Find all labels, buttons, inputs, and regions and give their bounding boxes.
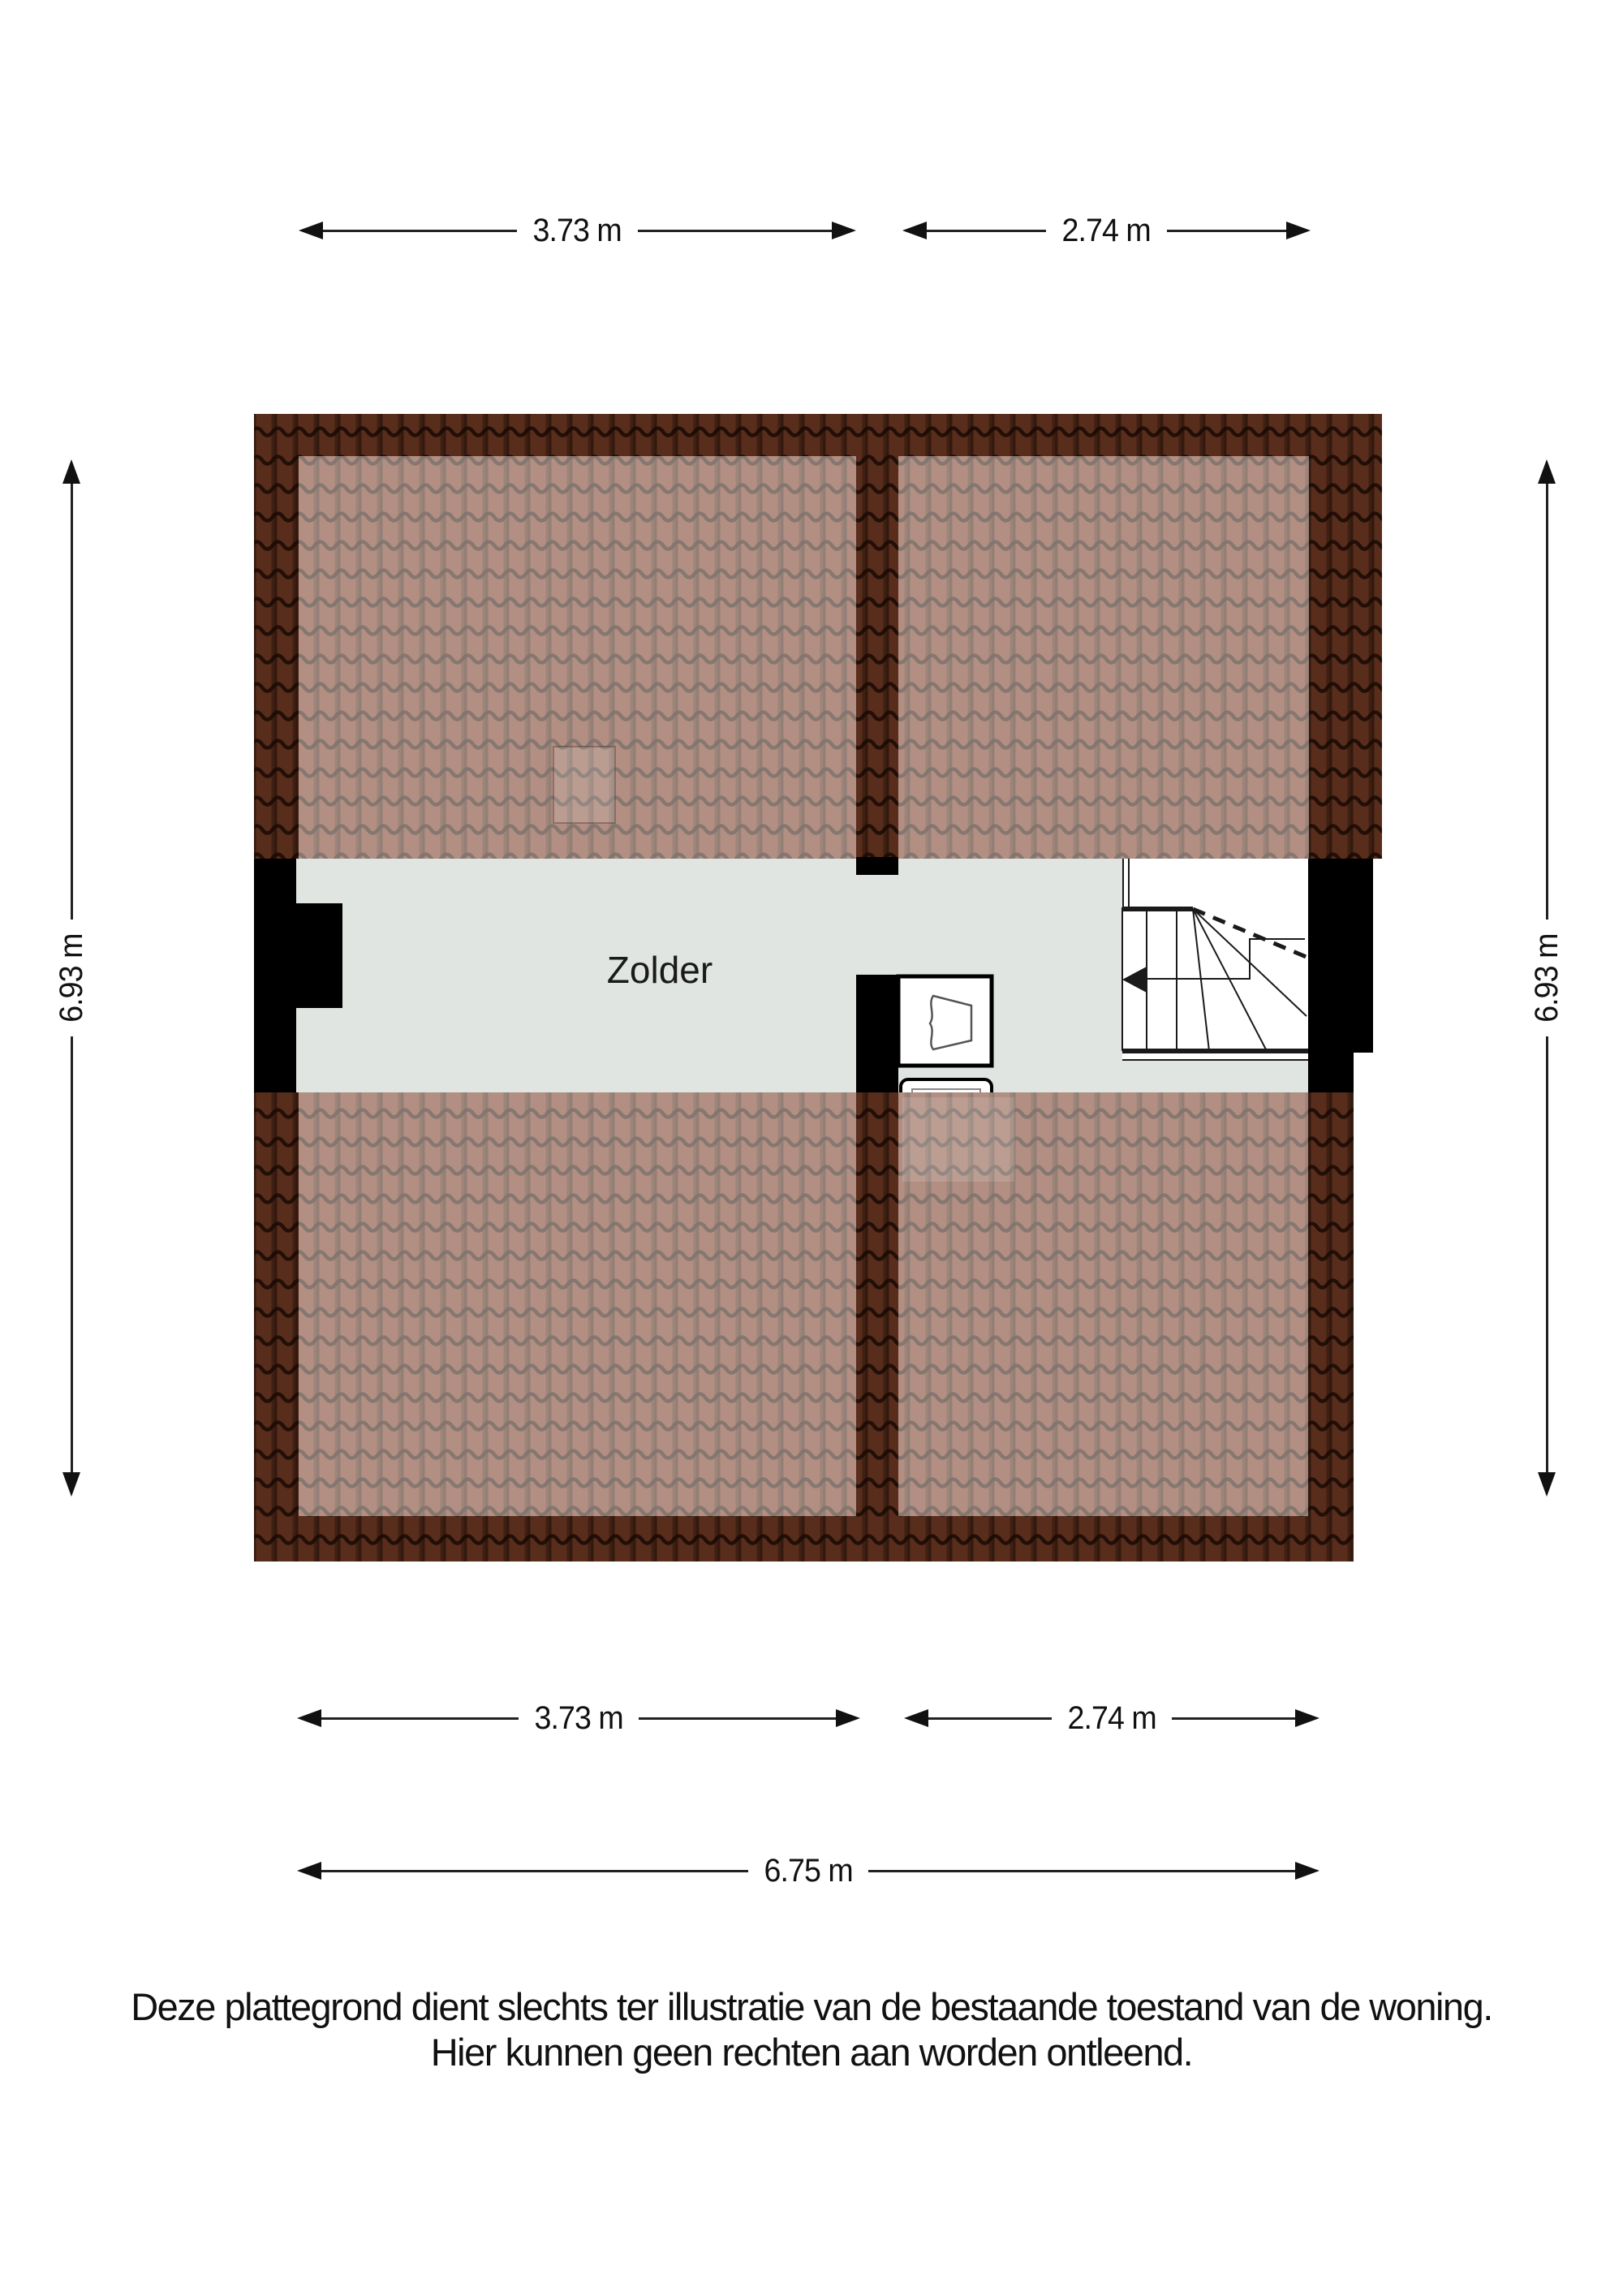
roof-panel-bottom-left bbox=[299, 1092, 856, 1516]
wall-center-stub bbox=[856, 857, 898, 875]
dimension-label: 3.73 m bbox=[521, 213, 634, 249]
roof-edge-bottom bbox=[254, 1516, 1354, 1562]
dimension-left-height: 6.93 m bbox=[53, 459, 90, 1497]
roof-divider-bottom bbox=[856, 1092, 898, 1516]
dimension-label: 6.93 m bbox=[54, 923, 90, 1033]
dimension-bottom-right-section: 2.74 m bbox=[904, 1699, 1319, 1737]
arrowhead-right-icon bbox=[832, 222, 856, 239]
roof-panel-top-right bbox=[898, 456, 1309, 859]
arrowhead-right-icon bbox=[1286, 222, 1311, 239]
roof-edge-bottom-right bbox=[1308, 1092, 1354, 1516]
wall-left-pier bbox=[296, 903, 342, 1008]
roof-edge-top-left bbox=[254, 456, 299, 859]
dimension-label: 2.74 m bbox=[1050, 213, 1163, 249]
dimension-bottom-total: 6.75 m bbox=[297, 1852, 1319, 1889]
disclaimer-text: Deze plattegrond dient slechts ter illus… bbox=[0, 1984, 1623, 2075]
dimension-label: 2.74 m bbox=[1055, 1700, 1168, 1737]
arrowhead-left-icon bbox=[902, 222, 927, 239]
dimension-label: 6.75 m bbox=[751, 1853, 864, 1889]
dimension-top-right-section: 2.74 m bbox=[902, 212, 1311, 249]
room-label: Zolder bbox=[607, 949, 712, 991]
wall-right-upper bbox=[1308, 859, 1373, 1053]
wall-right-lower bbox=[1308, 1053, 1354, 1092]
dimension-right-height: 6.93 m bbox=[1528, 459, 1565, 1497]
disclaimer-line-2: Hier kunnen geen rechten aan worden ontl… bbox=[0, 2030, 1623, 2075]
dimension-top-left-section: 3.73 m bbox=[299, 212, 856, 249]
roof-edge-bottom-left bbox=[254, 1092, 299, 1516]
wall-center-lower bbox=[856, 975, 898, 1092]
arrowhead-down-icon bbox=[1538, 1472, 1556, 1497]
stairwell-area bbox=[1122, 859, 1308, 1061]
floorplan-page: { "page": { "background": "#ffffff" }, "… bbox=[0, 0, 1623, 2296]
floorplan-drawing: Zolder bbox=[254, 414, 1383, 1562]
skylight bbox=[553, 747, 615, 823]
roof-divider-top bbox=[856, 456, 898, 859]
dormer-window-box bbox=[898, 976, 992, 1066]
arrowhead-left-icon bbox=[299, 222, 323, 239]
dimension-label: 3.73 m bbox=[522, 1700, 635, 1737]
wall-left bbox=[254, 859, 296, 1092]
arrowhead-left-icon bbox=[297, 1709, 321, 1727]
arrowhead-left-icon bbox=[297, 1862, 321, 1880]
roof-edge-top bbox=[254, 414, 1382, 456]
arrowhead-left-icon bbox=[904, 1709, 928, 1727]
dormer-ghost bbox=[902, 1097, 1014, 1182]
roof-edge-top-right bbox=[1309, 456, 1382, 859]
arrowhead-up-icon bbox=[62, 459, 80, 484]
arrowhead-down-icon bbox=[62, 1472, 80, 1497]
arrowhead-right-icon bbox=[1295, 1709, 1319, 1727]
disclaimer-line-1: Deze plattegrond dient slechts ter illus… bbox=[0, 1984, 1623, 2030]
dimension-bottom-left-section: 3.73 m bbox=[297, 1699, 860, 1737]
arrowhead-right-icon bbox=[1295, 1862, 1319, 1880]
arrowhead-right-icon bbox=[836, 1709, 860, 1727]
dimension-label: 6.93 m bbox=[1529, 923, 1565, 1033]
arrowhead-up-icon bbox=[1538, 459, 1556, 484]
